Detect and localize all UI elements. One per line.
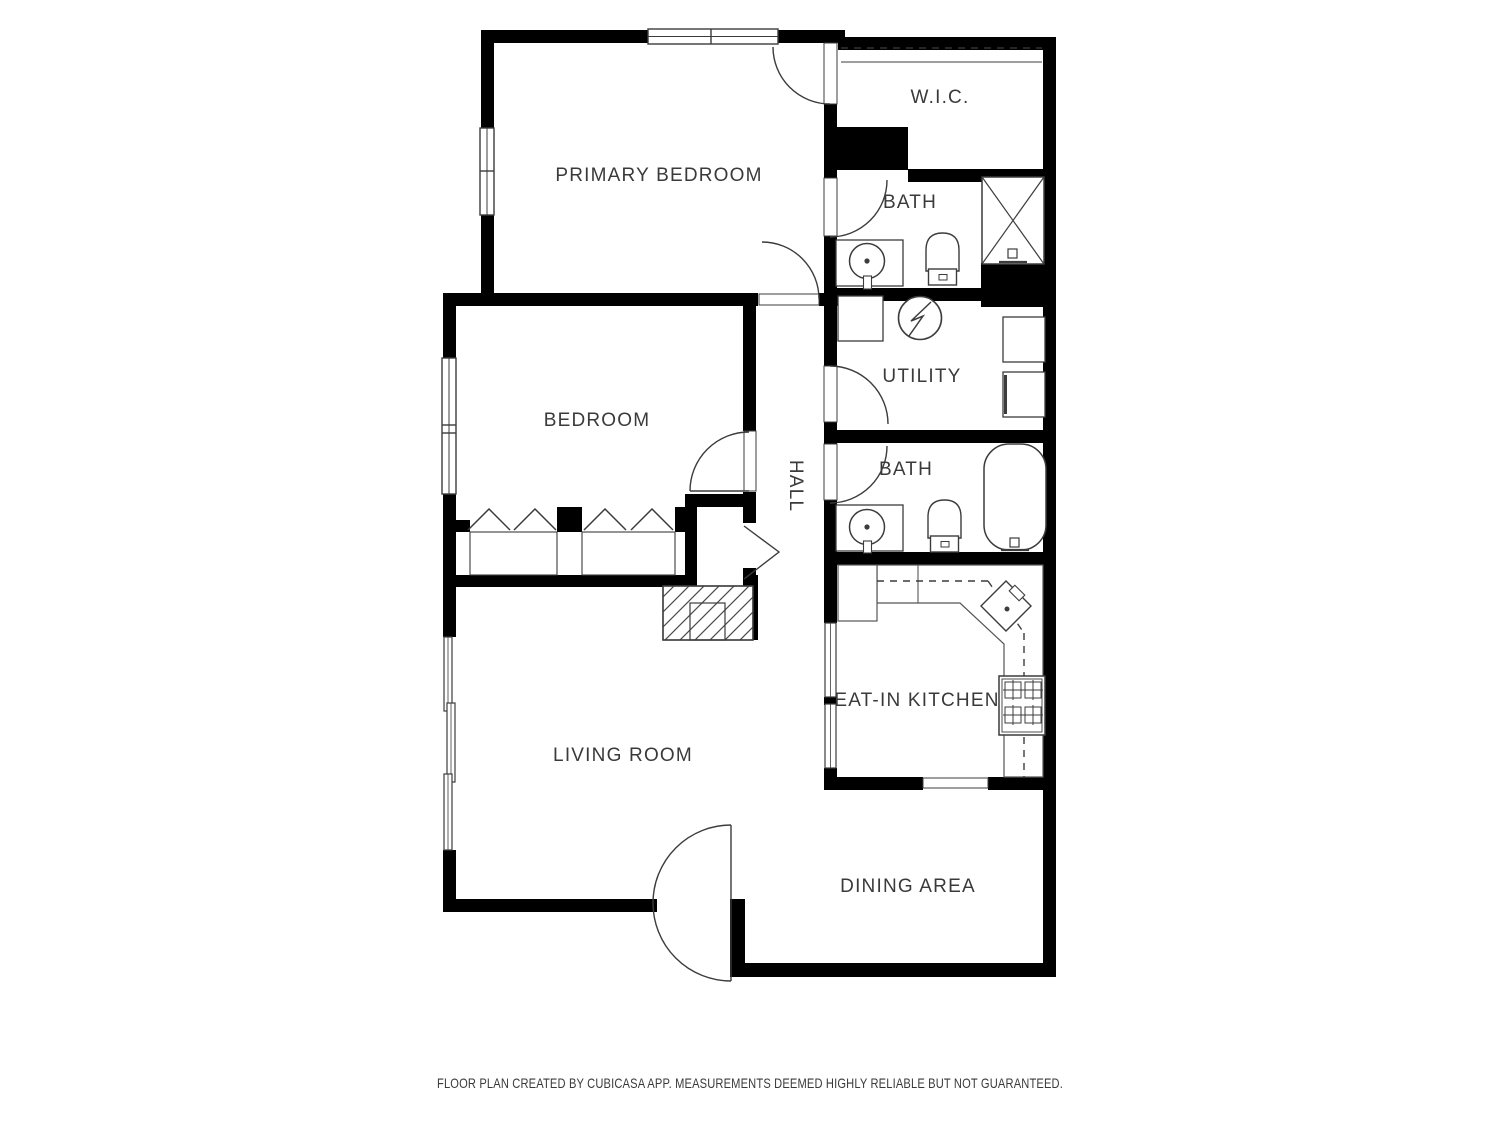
room-label-primary-bedroom: PRIMARY BEDROOM xyxy=(555,165,762,186)
room-label-utility: UTILITY xyxy=(882,366,961,387)
room-label-wic: W.I.C. xyxy=(911,87,970,108)
kitchen-fixtures xyxy=(838,565,1045,777)
sink-icon xyxy=(836,240,903,289)
bathtub-icon xyxy=(984,444,1046,550)
footer-disclaimer: FLOOR PLAN CREATED BY CUBICASA APP. MEAS… xyxy=(437,1075,1063,1091)
toilet-icon xyxy=(926,233,959,285)
window-primary-bedroom-left xyxy=(480,128,494,215)
toilet-icon xyxy=(928,500,961,552)
room-label-living-room: LIVING ROOM xyxy=(553,745,693,766)
room-label-hall: HALL xyxy=(785,460,806,512)
closet-box-right xyxy=(582,532,675,575)
room-label-bedroom: BEDROOM xyxy=(544,410,651,431)
window-primary-bedroom-top xyxy=(648,29,778,44)
room-label-bath-lower: BATH xyxy=(879,459,933,480)
door-primary-bedroom xyxy=(759,242,819,305)
laundry-appliances-icon xyxy=(1003,317,1045,417)
door-entry xyxy=(653,825,731,981)
shower-icon xyxy=(982,177,1044,264)
stove-icon xyxy=(999,676,1045,735)
utility-fixtures xyxy=(838,296,1045,417)
room-label-eat-in-kitchen: EAT-IN KITCHEN xyxy=(834,690,999,711)
room-label-bath-upper: BATH xyxy=(883,192,937,213)
closet-box-left xyxy=(470,532,557,575)
kitchen-pass-through-opening xyxy=(923,778,988,788)
door-bedroom xyxy=(690,431,756,491)
door-wic xyxy=(773,43,837,104)
door-bath-lower xyxy=(824,444,887,503)
door-utility xyxy=(824,366,888,424)
washer-icon xyxy=(838,296,883,341)
fridge-icon xyxy=(838,565,877,621)
floor-plan-canvas: PRIMARY BEDROOM W.I.C. BATH UTILITY BATH… xyxy=(0,0,1500,1125)
fireplace xyxy=(663,586,753,640)
room-labels: PRIMARY BEDROOM W.I.C. BATH UTILITY BATH… xyxy=(544,87,1000,897)
window-bedroom-left xyxy=(442,358,456,494)
bath-lower-fixtures xyxy=(836,444,1046,553)
door-bath-upper xyxy=(824,178,887,237)
sink-icon xyxy=(836,505,903,553)
room-label-dining-area: DINING AREA xyxy=(840,876,976,897)
window-living-room-left xyxy=(444,637,455,850)
wic-shelf-lines xyxy=(841,48,1042,62)
water-heater-icon xyxy=(899,297,942,340)
